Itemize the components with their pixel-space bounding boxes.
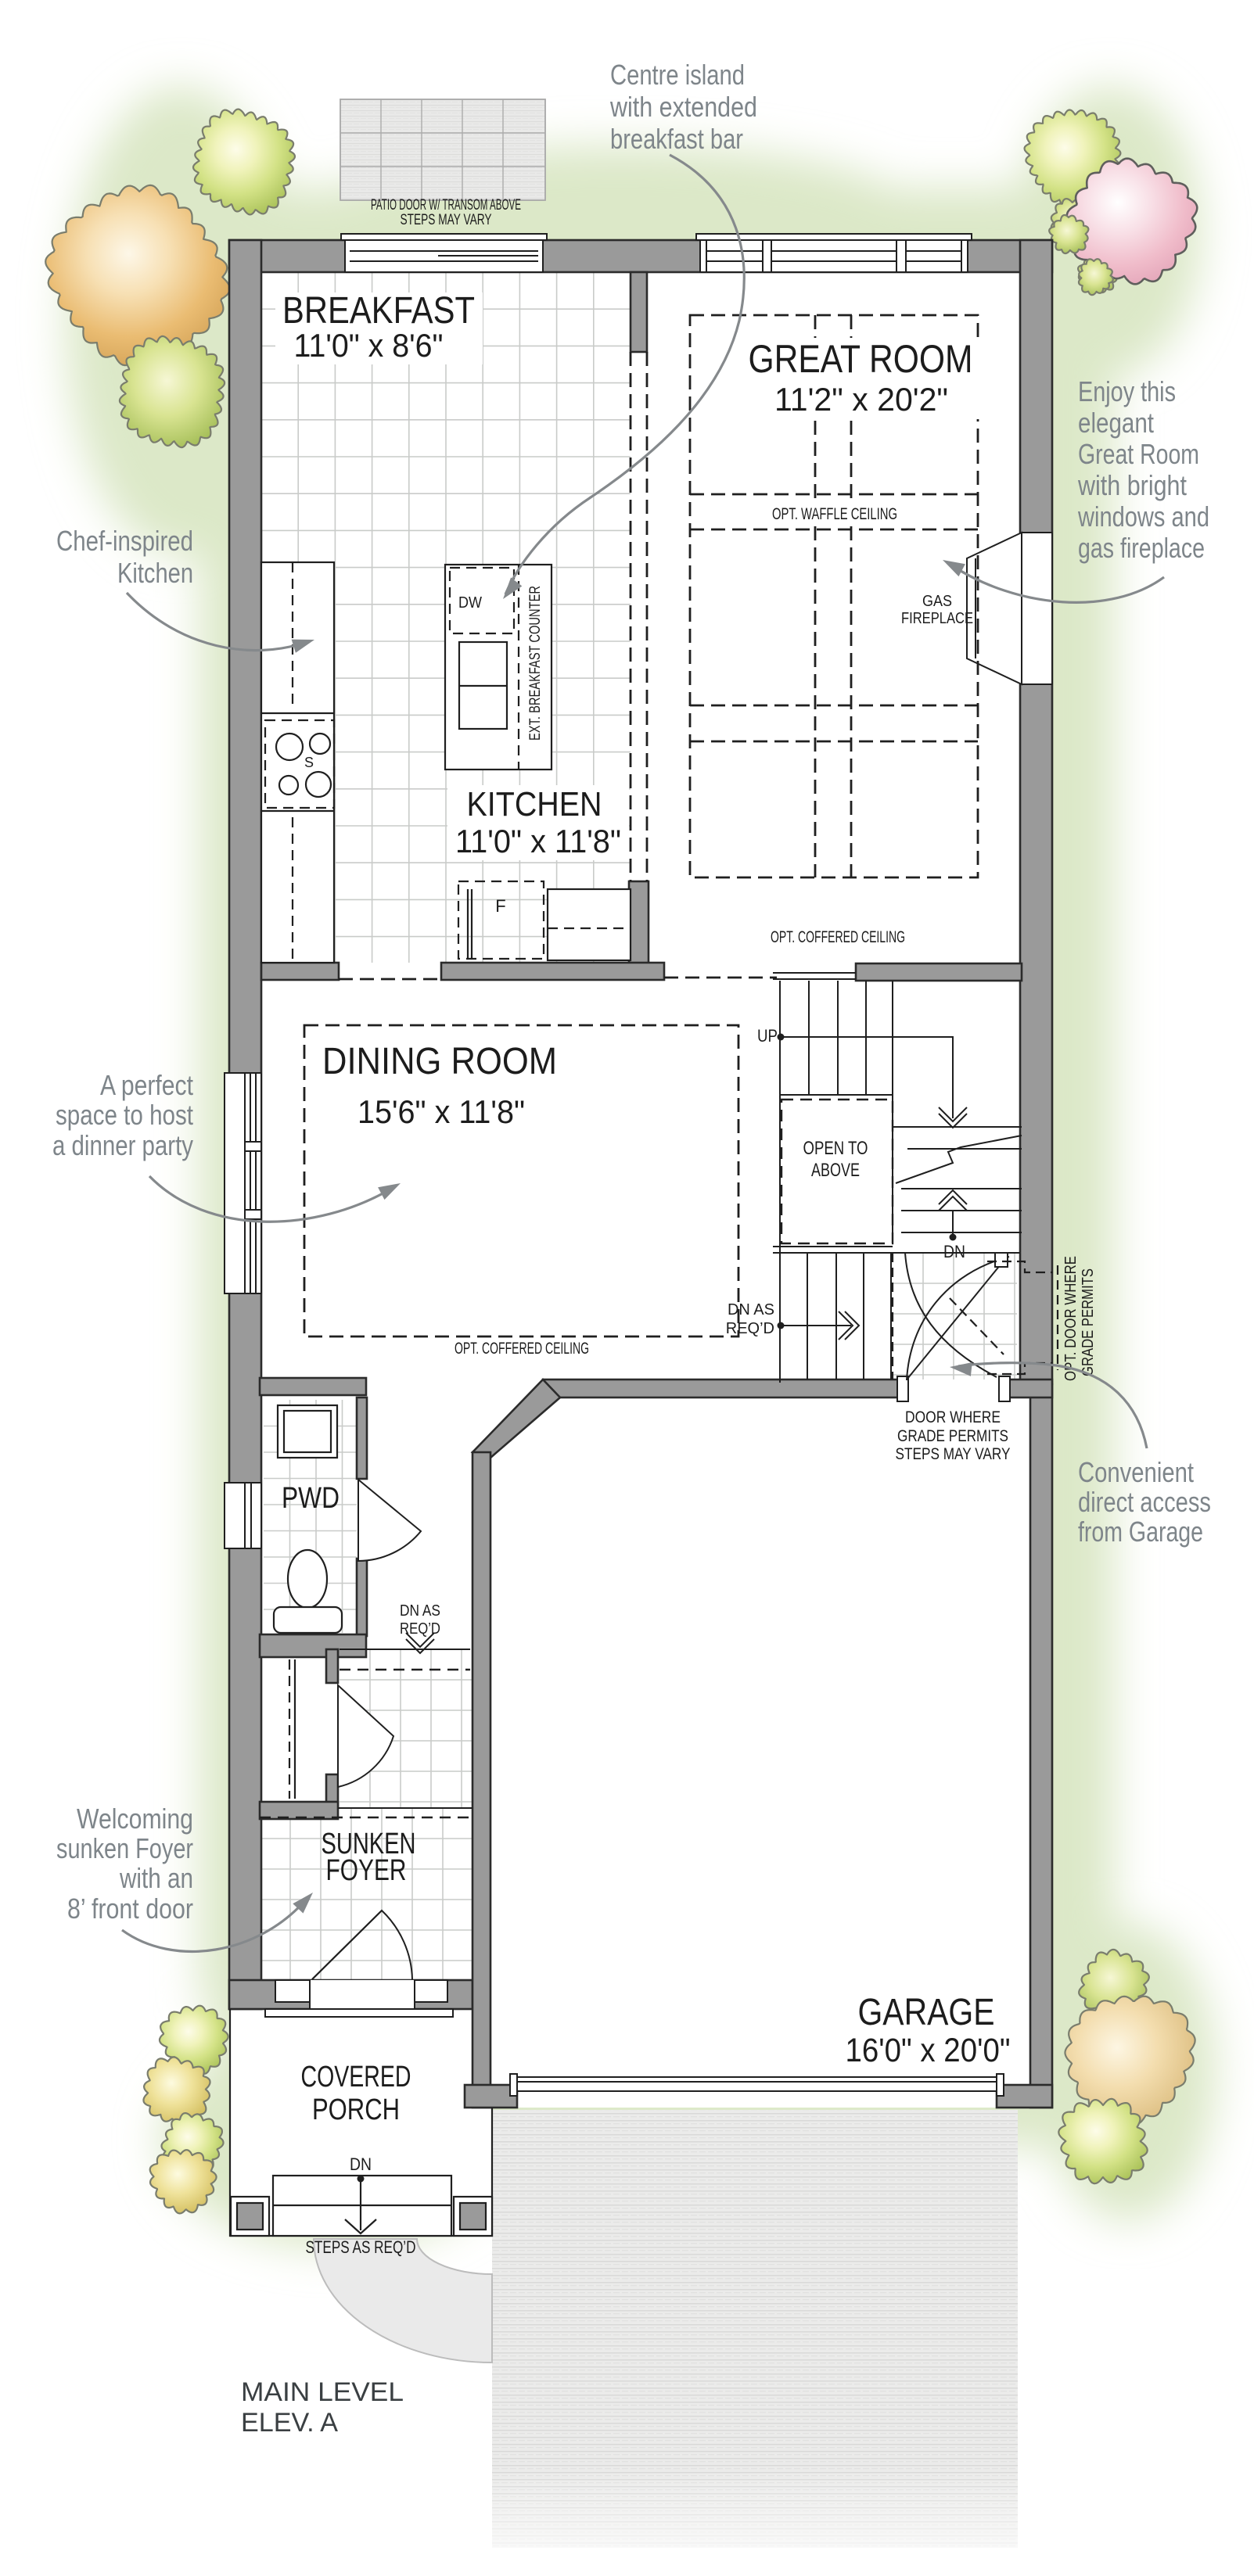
svg-text:OPT. COFFERED CEILING: OPT. COFFERED CEILING [455, 1340, 589, 1358]
svg-text:F: F [495, 896, 505, 916]
svg-text:gas fireplace: gas fireplace [1078, 532, 1205, 564]
svg-text:PORCH: PORCH [312, 2093, 400, 2126]
svg-text:KITCHEN: KITCHEN [467, 785, 602, 823]
svg-text:ELEV. A: ELEV. A [241, 2408, 338, 2438]
svg-text:OPEN TO: OPEN TO [803, 1138, 868, 1159]
svg-text:with extended: with extended [609, 91, 757, 123]
svg-text:OPT. COFFERED CEILING: OPT. COFFERED CEILING [771, 928, 905, 946]
svg-text:16'0" x 20'0": 16'0" x 20'0" [846, 2032, 1011, 2069]
svg-text:EXT. BREAKFAST COUNTER: EXT. BREAKFAST COUNTER [527, 586, 544, 741]
svg-text:11'0" x 8'6": 11'0" x 8'6" [294, 327, 444, 364]
svg-text:Kitchen: Kitchen [117, 557, 193, 589]
svg-text:windows and: windows and [1077, 500, 1209, 533]
svg-text:8’ front door: 8’ front door [67, 1893, 193, 1925]
svg-text:OPT. DOOR WHERE: OPT. DOOR WHERE [1062, 1256, 1080, 1381]
svg-text:GREAT ROOM: GREAT ROOM [749, 337, 973, 381]
svg-text:Enjoy this: Enjoy this [1078, 375, 1176, 407]
svg-text:A perfect: A perfect [100, 1069, 193, 1101]
svg-text:REQ’D: REQ’D [726, 1320, 774, 1337]
svg-text:GRADE PERMITS: GRADE PERMITS [897, 1427, 1008, 1445]
svg-text:BREAKFAST: BREAKFAST [282, 290, 475, 332]
svg-text:from Garage: from Garage [1078, 1516, 1203, 1548]
svg-text:PATIO DOOR W/ TRANSOM ABOVE: PATIO DOOR W/ TRANSOM ABOVE [371, 197, 521, 213]
svg-text:DN AS: DN AS [728, 1301, 774, 1318]
svg-text:11'0" x 11'8": 11'0" x 11'8" [455, 823, 621, 859]
svg-text:DW: DW [458, 594, 482, 612]
svg-text:STEPS MAY VARY: STEPS MAY VARY [896, 1445, 1011, 1463]
svg-text:DINING ROOM: DINING ROOM [322, 1041, 557, 1082]
svg-text:Convenient: Convenient [1078, 1456, 1194, 1488]
svg-text:STEPS MAY VARY: STEPS MAY VARY [401, 212, 492, 228]
svg-text:11'2" x 20'2": 11'2" x 20'2" [774, 381, 948, 418]
svg-text:OPT. WAFFLE CEILING: OPT. WAFFLE CEILING [772, 505, 897, 523]
svg-text:DN: DN [350, 2154, 372, 2174]
svg-text:a dinner party: a dinner party [52, 1129, 193, 1161]
svg-text:PWD: PWD [282, 1482, 340, 1515]
svg-text:S: S [304, 755, 314, 770]
svg-text:ABOVE: ABOVE [811, 1160, 860, 1181]
svg-text:DN AS: DN AS [400, 1602, 440, 1620]
svg-text:FIREPLACE: FIREPLACE [901, 610, 973, 627]
svg-text:GARAGE: GARAGE [858, 1992, 995, 2033]
svg-text:with an: with an [119, 1862, 193, 1894]
svg-text:STEPS AS REQ’D: STEPS AS REQ’D [306, 2237, 416, 2257]
svg-text:Centre island: Centre island [610, 59, 745, 91]
svg-text:sunken Foyer: sunken Foyer [56, 1832, 193, 1864]
svg-text:UP: UP [757, 1026, 778, 1046]
svg-text:Chef-inspired: Chef-inspired [56, 525, 193, 557]
svg-text:direct access: direct access [1078, 1486, 1211, 1518]
svg-text:COVERED: COVERED [301, 2061, 411, 2093]
svg-text:Great Room: Great Room [1078, 438, 1199, 470]
svg-text:GAS: GAS [922, 593, 952, 610]
svg-text:DN: DN [943, 1242, 965, 1261]
svg-text:breakfast bar: breakfast bar [610, 123, 743, 155]
svg-text:space to host: space to host [56, 1099, 193, 1131]
svg-text:DOOR WHERE: DOOR WHERE [905, 1408, 1001, 1426]
svg-text:MAIN LEVEL: MAIN LEVEL [241, 2377, 404, 2407]
svg-text:elegant: elegant [1078, 407, 1154, 439]
svg-text:15'6" x 11'8": 15'6" x 11'8" [358, 1093, 525, 1130]
svg-text:GRADE PERMITS: GRADE PERMITS [1080, 1268, 1097, 1376]
svg-text:FOYER: FOYER [326, 1854, 407, 1887]
svg-text:Welcoming: Welcoming [77, 1803, 193, 1835]
svg-text:REQ’D: REQ’D [400, 1620, 440, 1638]
svg-text:with bright: with bright [1077, 469, 1187, 501]
